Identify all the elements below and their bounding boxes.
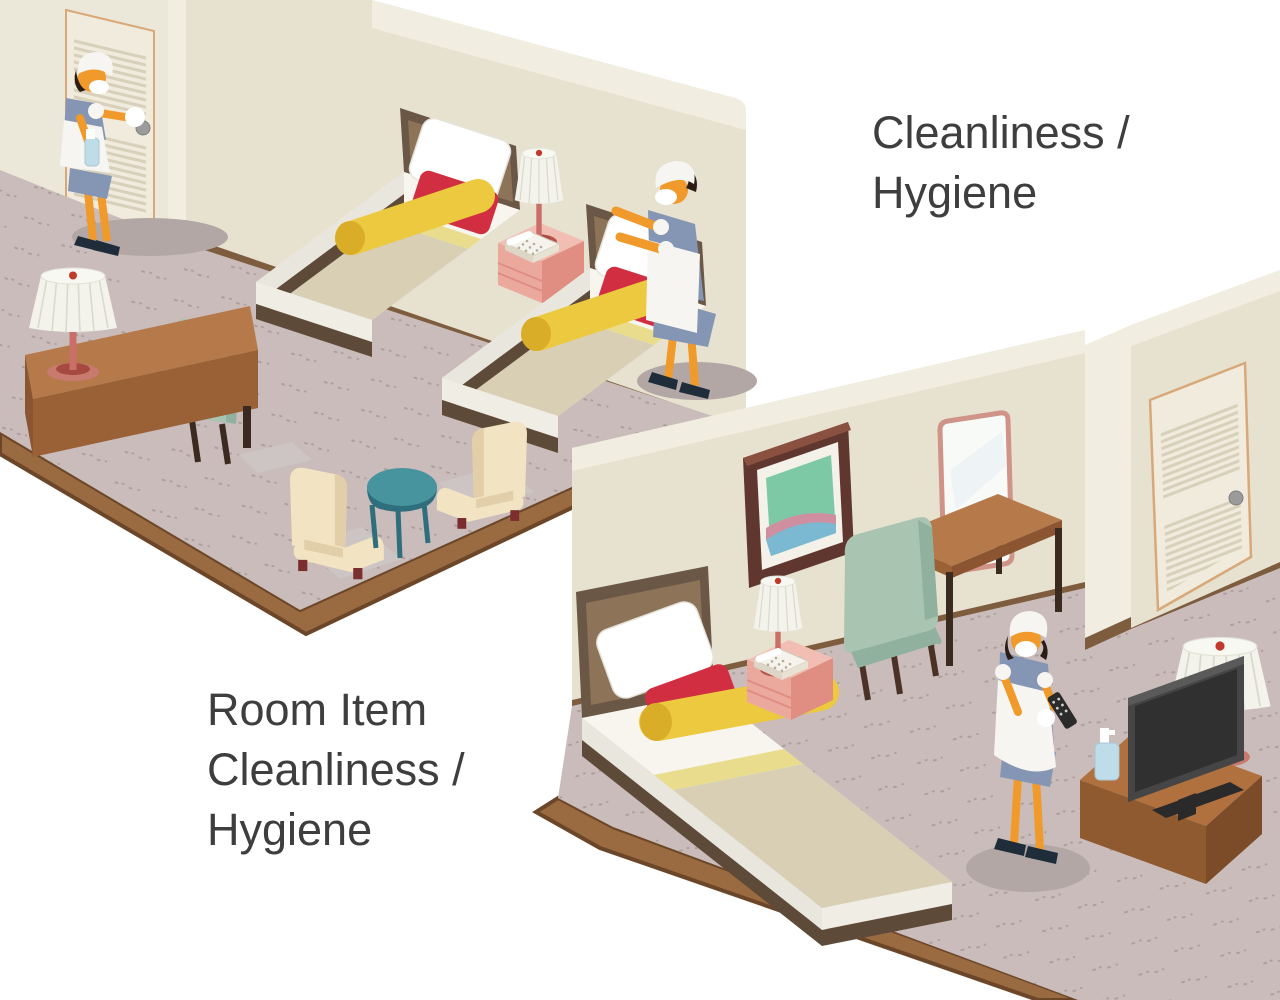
face-mask [655, 189, 677, 205]
door-knob [1229, 491, 1243, 505]
cleaning-cloth [1037, 709, 1055, 727]
desk-leg [243, 406, 251, 448]
wall-corner-bevel [168, 0, 186, 248]
door-wall-side [1085, 325, 1131, 650]
desk-leg [946, 572, 953, 666]
caption-room-item-cleanliness: Room Item Cleanliness / Hygiene [207, 680, 465, 860]
illustration-stage: Cleanliness / Hygiene Room Item Cleanlin… [0, 0, 1280, 1000]
apron [646, 240, 700, 333]
caption-cleanliness-hygiene: Cleanliness / Hygiene [872, 103, 1130, 223]
desk-leg [1055, 528, 1062, 612]
cleaning-cloth [125, 107, 145, 127]
face-mask [1015, 641, 1037, 657]
face-mask [89, 80, 109, 94]
